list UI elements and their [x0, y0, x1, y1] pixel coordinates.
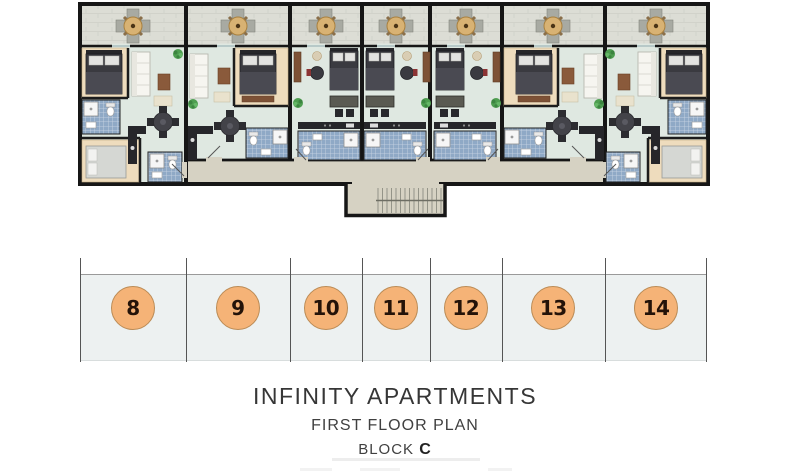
cropped-artifact [332, 458, 480, 461]
cropped-artifact [360, 468, 400, 471]
unit-number-badge-13: 13 [531, 286, 575, 330]
block-prefix: BLOCK [358, 441, 414, 458]
unit-cell-10: 10 [290, 258, 361, 362]
unit-number-badge-9: 9 [216, 286, 260, 330]
unit-cell-12: 12 [430, 258, 501, 362]
unit-cell-9: 9 [186, 258, 289, 362]
unit-number-badge-14: 14 [634, 286, 678, 330]
staircase [346, 181, 445, 218]
unit-number-badge-10: 10 [304, 286, 348, 330]
unit-number-badge-8: 8 [111, 286, 155, 330]
unit-cell-8: 8 [80, 258, 185, 362]
block-label: BLOCK C [0, 441, 790, 459]
page: 8 9 10 11 12 13 14 INFINITY APARTMENTS F… [0, 0, 790, 472]
cropped-artifact [300, 468, 332, 471]
block-letter: C [419, 441, 432, 458]
building-name: INFINITY APARTMENTS [0, 383, 790, 410]
floor-plan [0, 0, 790, 240]
unit-cell-11: 11 [362, 258, 429, 362]
unit-number-strip: 8 9 10 11 12 13 14 [80, 258, 707, 362]
plan-name: FIRST FLOOR PLAN [0, 417, 790, 435]
corridor [188, 160, 604, 183]
unit-cell-14: 14 [605, 258, 708, 362]
cropped-artifact [488, 468, 512, 471]
unit-number-badge-11: 11 [374, 286, 418, 330]
title-block: INFINITY APARTMENTS FIRST FLOOR PLAN BLO… [0, 383, 790, 459]
unit-cell-13: 13 [502, 258, 604, 362]
unit-number-badge-12: 12 [444, 286, 488, 330]
